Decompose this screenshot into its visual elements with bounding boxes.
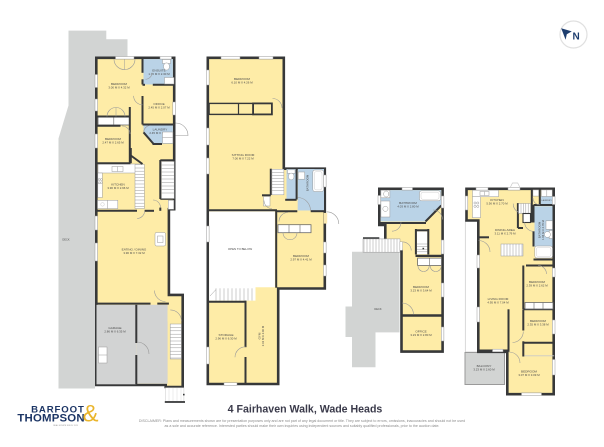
svg-text:3.23 M X 3.64 M: 3.23 M X 3.64 M bbox=[410, 289, 432, 293]
svg-text:2.96 M X 6.30 M: 2.96 M X 6.30 M bbox=[215, 337, 237, 341]
svg-text:3.07 M X 3.09 M: 3.07 M X 3.09 M bbox=[518, 373, 540, 377]
svg-text:BATHROOM: BATHROOM bbox=[306, 174, 310, 191]
svg-text:3.96 M X 2.96 M: 3.96 M X 2.96 M bbox=[107, 186, 129, 190]
svg-text:1.64 M X 2.76 M: 1.64 M X 2.76 M bbox=[541, 219, 545, 239]
svg-text:3.23 M X 2.80 M: 3.23 M X 2.80 M bbox=[410, 333, 432, 337]
svg-text:THOMPSON: THOMPSON bbox=[17, 413, 84, 425]
svg-text:5.56 M X 2.70 M: 5.56 M X 2.70 M bbox=[486, 202, 508, 206]
svg-text:as a sole and accurate referen: as a sole and accurate reference. Intere… bbox=[165, 424, 440, 428]
svg-text:3.23 M X 2.60 M: 3.23 M X 2.60 M bbox=[473, 368, 495, 372]
svg-text:4 Fairhaven Walk, Wade Heads: 4 Fairhaven Walk, Wade Heads bbox=[228, 403, 383, 415]
svg-text:DECK: DECK bbox=[374, 307, 381, 311]
svg-text:2.39 M X 2.62 M: 2.39 M X 2.62 M bbox=[526, 284, 548, 288]
svg-text:2.45 M X 2.07 M: 2.45 M X 2.07 M bbox=[148, 106, 170, 110]
svg-text:BATHROOM: BATHROOM bbox=[538, 221, 542, 238]
svg-text:7.00 M X 7.22 M: 7.00 M X 7.22 M bbox=[232, 157, 254, 161]
svg-text:2.97 M X 4.41 M: 2.97 M X 4.41 M bbox=[290, 258, 312, 262]
svg-text:DISCLAIMER: Plans and measurem: DISCLAIMER: Plans and measurements shown… bbox=[139, 419, 465, 423]
svg-text:N: N bbox=[573, 32, 580, 43]
svg-text:3.63 M X 2.90 M: 3.63 M X 2.90 M bbox=[261, 325, 265, 346]
svg-text:2.35 M X 3.38 M: 2.35 M X 3.38 M bbox=[527, 323, 549, 327]
svg-text:3.00 M X 4.32 M: 3.00 M X 4.32 M bbox=[108, 86, 130, 90]
svg-text:2.47 M X 2.65 M: 2.47 M X 2.65 M bbox=[102, 141, 124, 145]
svg-text:LAUNDRY: LAUNDRY bbox=[541, 199, 552, 202]
svg-text:2.86 M X 6.35 M: 2.86 M X 6.35 M bbox=[104, 330, 126, 334]
svg-text:4.03 M X 2.80 M: 4.03 M X 2.80 M bbox=[397, 205, 419, 209]
svg-text:3.96 M X 7.32 M: 3.96 M X 7.32 M bbox=[123, 251, 145, 255]
svg-text:6.10 M X 4.26 M: 6.10 M X 4.26 M bbox=[231, 81, 253, 85]
svg-text:REAL ESTATE SINCE 1923: REAL ESTATE SINCE 1923 bbox=[53, 424, 79, 427]
svg-text:4.95 M X 7.04 M: 4.95 M X 7.04 M bbox=[487, 301, 509, 305]
svg-text:&: & bbox=[83, 401, 99, 428]
svg-text:DECK: DECK bbox=[62, 238, 69, 242]
svg-text:OPEN TO BELOW: OPEN TO BELOW bbox=[228, 247, 252, 251]
svg-text:3.11 M X 2.79 M: 3.11 M X 2.79 M bbox=[495, 232, 517, 236]
